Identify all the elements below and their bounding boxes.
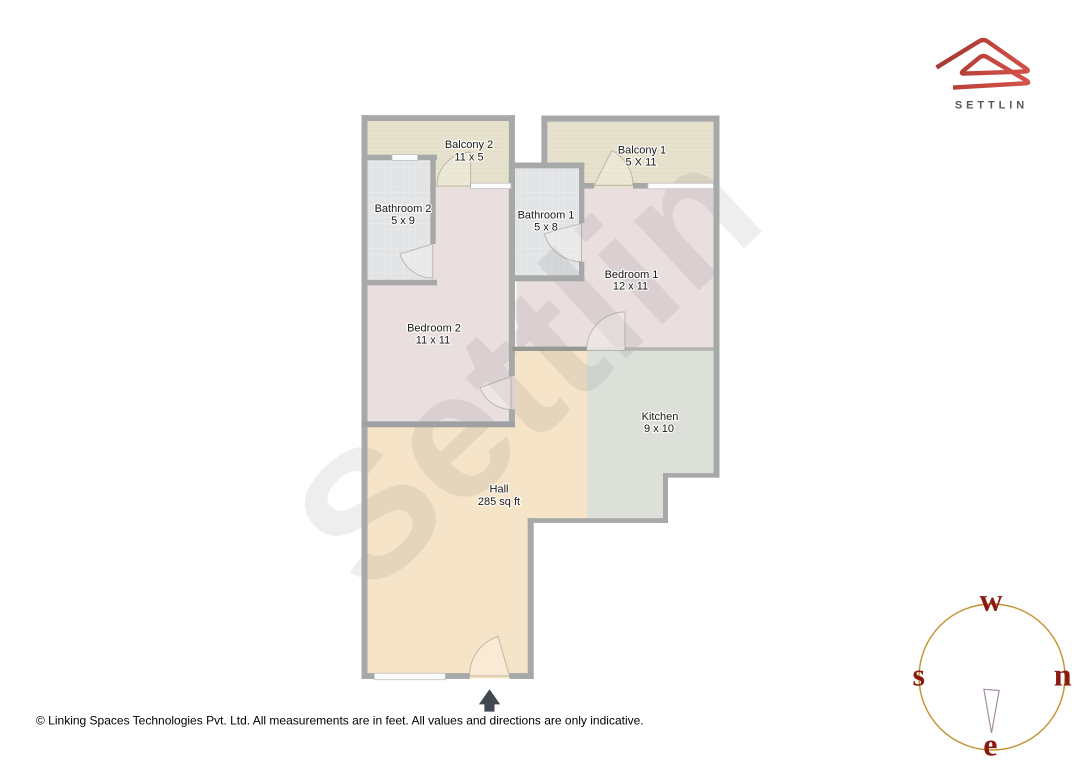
svg-text:12 x 11: 12 x 11 bbox=[613, 281, 648, 293]
svg-text:5 X 11: 5 X 11 bbox=[626, 157, 657, 169]
svg-text:Hall: Hall bbox=[490, 483, 509, 495]
svg-text:s: s bbox=[912, 657, 924, 693]
svg-text:5 x 8: 5 x 8 bbox=[534, 221, 558, 233]
svg-text:Balcony 2: Balcony 2 bbox=[445, 139, 493, 151]
svg-text:Bathroom 1: Bathroom 1 bbox=[518, 209, 575, 221]
svg-text:SETTLIN: SETTLIN bbox=[955, 100, 1028, 112]
svg-text:285 sq ft: 285 sq ft bbox=[478, 496, 520, 508]
svg-text:Kitchen: Kitchen bbox=[642, 411, 679, 423]
svg-text:w: w bbox=[979, 582, 1002, 618]
svg-text:9 x 10: 9 x 10 bbox=[644, 423, 674, 435]
svg-text:Bedroom 1: Bedroom 1 bbox=[605, 269, 659, 281]
svg-text:11 x 11: 11 x 11 bbox=[416, 335, 450, 347]
svg-text:e: e bbox=[983, 727, 997, 763]
svg-text:Bedroom 2: Bedroom 2 bbox=[407, 323, 461, 335]
svg-text:Bathroom 2: Bathroom 2 bbox=[375, 203, 432, 215]
svg-text:5 x 9: 5 x 9 bbox=[391, 215, 415, 227]
svg-text:Balcony 1: Balcony 1 bbox=[618, 145, 666, 157]
svg-text:11 x 5: 11 x 5 bbox=[454, 151, 483, 163]
svg-text:© Linking Spaces Technologies: © Linking Spaces Technologies Pvt. Ltd. … bbox=[36, 714, 644, 728]
svg-text:n: n bbox=[1054, 657, 1072, 693]
